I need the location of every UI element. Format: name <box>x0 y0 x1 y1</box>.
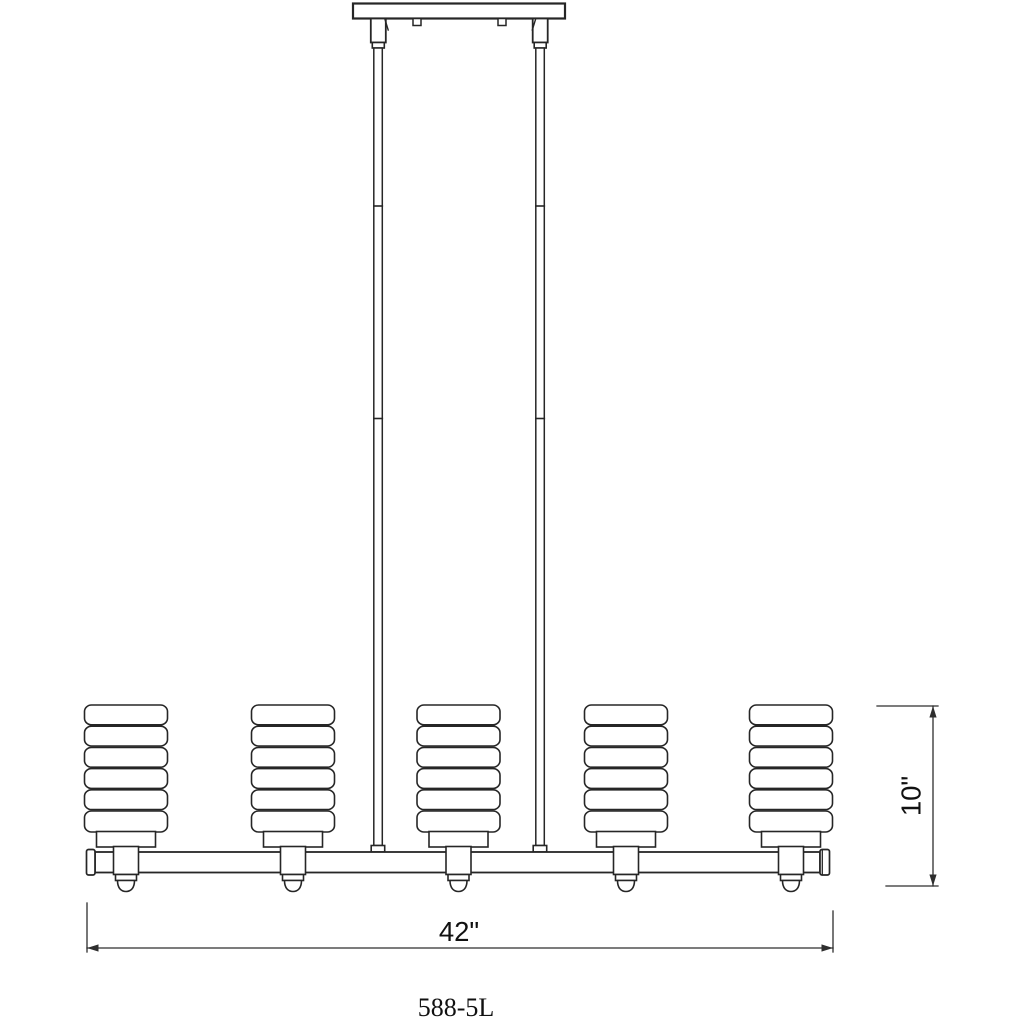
canopy-screw-left <box>413 19 421 26</box>
width-dimension-label: 42" <box>439 916 479 947</box>
height-dimension-label: 10" <box>895 776 926 816</box>
suspension-rod-left <box>371 19 388 853</box>
canopy-plate <box>353 4 565 19</box>
suspension-rod-right <box>532 19 547 853</box>
model-number-label: 588-5L <box>418 993 495 1022</box>
rod-collar-base <box>534 43 546 49</box>
arrowhead-left <box>87 944 99 951</box>
arrowhead-right <box>822 944 834 951</box>
rod-collar-base <box>372 43 384 49</box>
rod-foot <box>533 846 547 853</box>
rod-body <box>374 48 383 846</box>
rod-body <box>536 48 545 846</box>
canopy-screw-right <box>498 19 506 26</box>
arrowhead-up <box>929 706 936 718</box>
crossbar-endcap-right <box>820 850 830 876</box>
rod-collar <box>371 19 386 43</box>
drawing-canvas: 10" 42" 588-5L <box>0 0 1024 1024</box>
rod-foot <box>371 846 385 853</box>
fixture-diagram: 10" 42" 588-5L <box>0 0 1024 1024</box>
dimension-height: 10" <box>877 706 938 886</box>
dimension-width: 42" <box>87 903 833 952</box>
arrowhead-down <box>929 875 936 887</box>
crossbar-endcap-left <box>87 850 96 876</box>
